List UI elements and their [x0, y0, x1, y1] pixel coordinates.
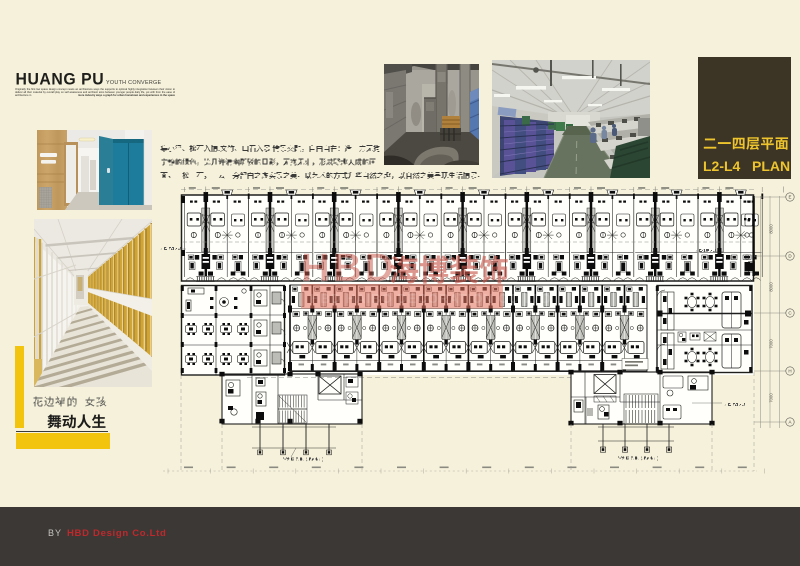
svg-text:D: D — [788, 254, 792, 259]
svg-text:A: A — [788, 420, 791, 425]
svg-text:8000: 8000 — [769, 282, 774, 292]
svg-text:HBD: HBD — [301, 246, 397, 290]
svg-text:HBD HAIBO DECORATION CO LTD: HBD HAIBO DECORATION CO LTD — [310, 291, 552, 306]
svg-text:7000: 7000 — [769, 339, 774, 349]
svg-text:H: H — [788, 369, 791, 374]
svg-text:7000: 7000 — [769, 393, 774, 403]
svg-text:E: E — [788, 195, 791, 200]
svg-text:8000: 8000 — [769, 224, 774, 234]
svg-text:C: C — [788, 311, 792, 316]
